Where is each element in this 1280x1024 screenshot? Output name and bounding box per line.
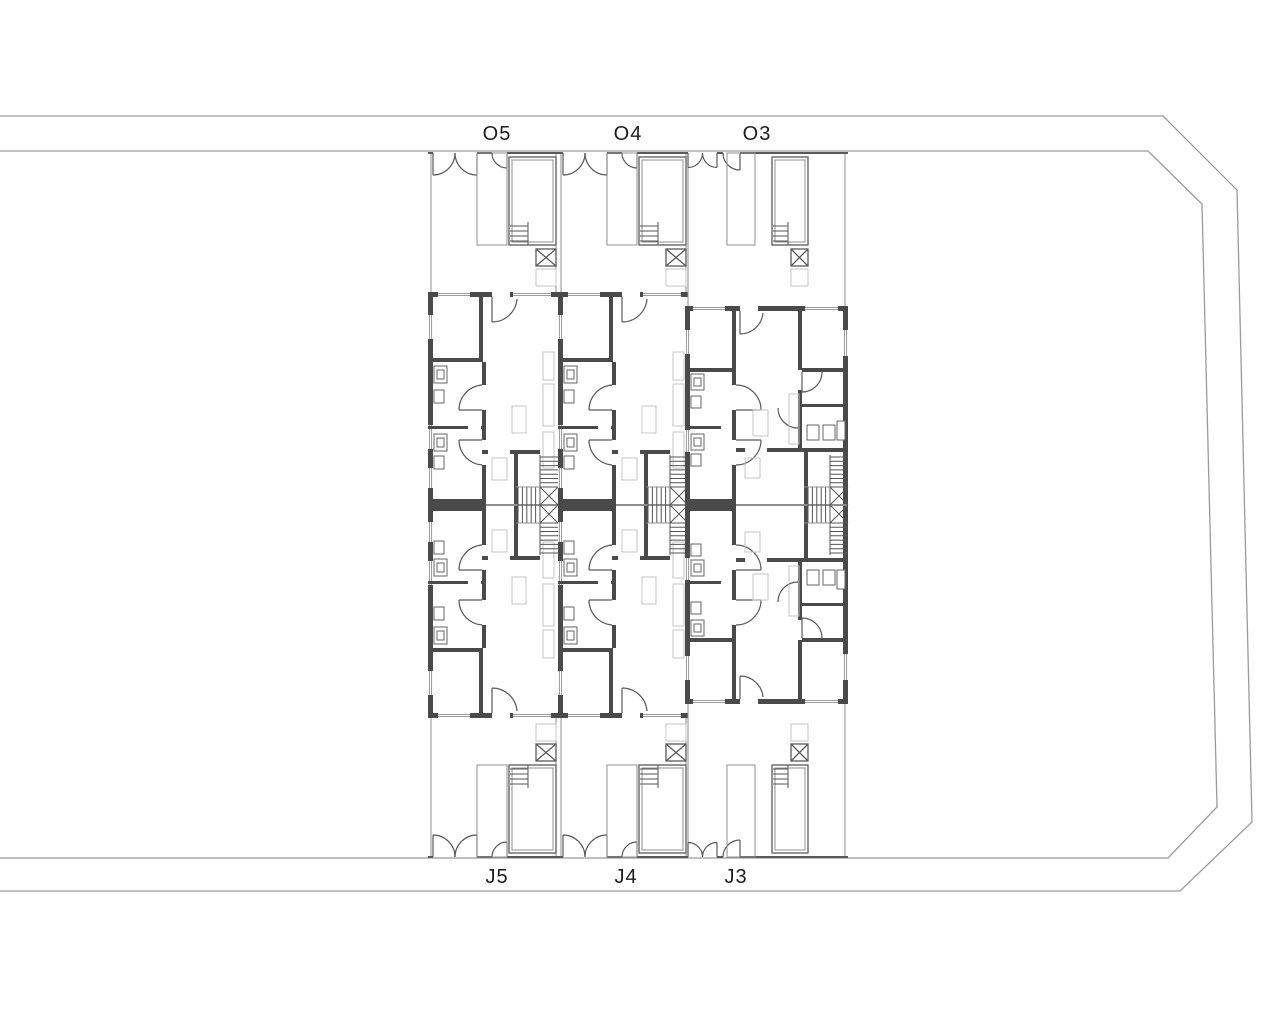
unit-J4 [558,505,688,857]
unit-label-O5: O5 [483,123,512,145]
site-boundary [0,116,1252,891]
site-plan-drawing: O5 O4 O3 J5 J4 J3 [0,0,1280,1024]
unit-O4 [558,153,688,505]
unit-label-O3: O3 [743,123,772,145]
floor-plan-page: O5 O4 O3 J5 J4 J3 [0,0,1280,1024]
unit-J5 [428,505,558,857]
unit-label-J3: J3 [724,866,747,888]
unit-O5 [428,153,558,505]
site-boundary-outer [0,116,1252,891]
unit-label-O4: O4 [614,123,643,145]
unit-J3 [685,505,848,857]
unit-O3 [685,153,848,505]
unit-label-J4: J4 [614,866,637,888]
unit-label-J5: J5 [485,866,508,888]
